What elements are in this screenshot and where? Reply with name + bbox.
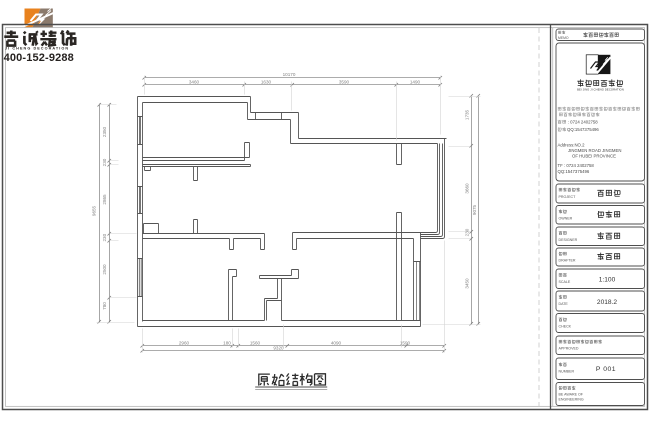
svg-text:3660: 3660 — [465, 183, 470, 194]
svg-text:NUMBER: NUMBER — [559, 369, 575, 373]
svg-text:ENGINEERING: ENGINEERING — [559, 398, 584, 402]
svg-text:230: 230 — [102, 158, 107, 166]
svg-text:JINGMEN ROAD JINGMEN: JINGMEN ROAD JINGMEN — [568, 148, 621, 153]
svg-text:3590: 3590 — [339, 80, 350, 85]
svg-text:2500: 2500 — [102, 264, 107, 275]
svg-text:1590: 1590 — [400, 340, 411, 345]
svg-text:230: 230 — [465, 228, 470, 236]
svg-text:4090: 4090 — [331, 340, 342, 345]
svg-text:780: 780 — [102, 302, 107, 310]
svg-text:2960: 2960 — [179, 340, 190, 345]
svg-text:3460: 3460 — [189, 80, 200, 85]
svg-text:P 001: P 001 — [596, 366, 616, 373]
svg-text:1630: 1630 — [261, 80, 272, 85]
svg-text:9075: 9075 — [472, 204, 477, 215]
svg-text:APPROVED: APPROVED — [559, 347, 579, 351]
svg-text:OWNER: OWNER — [559, 216, 573, 220]
svg-text:BE AWARE OF: BE AWARE OF — [559, 392, 584, 396]
svg-text:230: 230 — [102, 233, 107, 241]
svg-text:1490: 1490 — [410, 80, 421, 85]
svg-text:OF HUBEI PROVINCE: OF HUBEI PROVINCE — [572, 154, 616, 159]
svg-text:400-152-9288: 400-152-9288 — [4, 52, 74, 64]
svg-text:JI CHENG DECORATION: JI CHENG DECORATION — [5, 47, 69, 51]
svg-text:9655: 9655 — [92, 205, 97, 216]
svg-text:1735: 1735 — [465, 109, 470, 120]
svg-text:DESIGNER: DESIGNER — [559, 238, 578, 242]
svg-text:2018.2: 2018.2 — [597, 299, 618, 306]
svg-text:DATE: DATE — [559, 302, 569, 306]
svg-text:TF : 0724 2402758: TF : 0724 2402758 — [558, 163, 595, 168]
svg-text:DRAFTER: DRAFTER — [559, 259, 576, 263]
svg-text:BEI JING JI CHENG DECORATION: BEI JING JI CHENG DECORATION — [577, 88, 624, 92]
svg-text:QQ:1547375496: QQ:1547375496 — [567, 127, 599, 132]
svg-text:SCALE: SCALE — [559, 280, 571, 284]
svg-text:CHECK: CHECK — [559, 324, 572, 328]
svg-text:2350: 2350 — [102, 126, 107, 137]
svg-text:Address:NO.2: Address:NO.2 — [558, 142, 586, 147]
svg-text:: 0724 2402758: : 0724 2402758 — [568, 119, 598, 124]
svg-text:QQ:1547375496: QQ:1547375496 — [558, 169, 590, 174]
svg-text:10170: 10170 — [283, 72, 296, 77]
svg-text:MEMO: MEMO — [558, 36, 569, 40]
svg-text:1560: 1560 — [250, 340, 261, 345]
svg-text:1:100: 1:100 — [599, 276, 616, 283]
svg-text:PROJECT: PROJECT — [559, 195, 577, 199]
svg-text:2865: 2865 — [102, 194, 107, 205]
svg-text:180: 180 — [223, 340, 231, 345]
svg-text:3450: 3450 — [465, 278, 470, 289]
svg-text:9320: 9320 — [273, 345, 284, 350]
